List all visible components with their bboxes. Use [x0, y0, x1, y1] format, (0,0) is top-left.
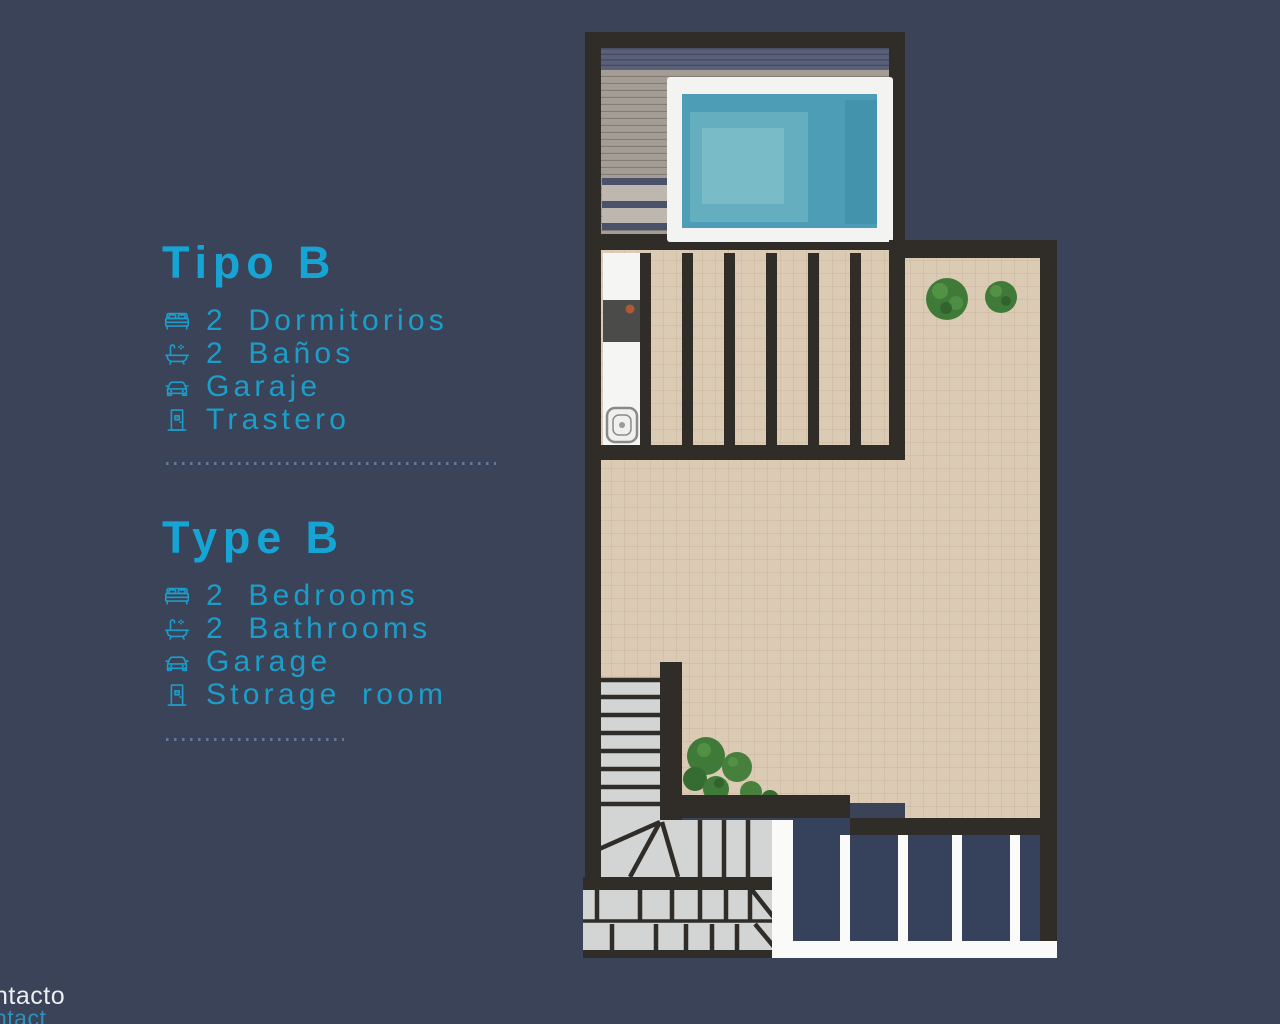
legend-spanish: Tipo B 2 Dormitorios 2 Baños Garaje Tras…: [160, 237, 448, 436]
swimming-pool: [667, 77, 893, 242]
legend-english: Type B 2 Bedrooms 2 Bathrooms Garage Sto…: [160, 512, 447, 711]
top-terrace: [585, 32, 905, 250]
door-icon: [160, 679, 194, 711]
feature-row-bedrooms: 2 Bedrooms: [160, 579, 447, 612]
feature-row-storage: Storage room: [160, 678, 447, 711]
dotted-separator: [166, 462, 496, 465]
deck-steps: [602, 178, 668, 230]
railing-base: [793, 941, 1057, 958]
feature-label: 2 Dormitorios: [206, 304, 448, 338]
car-icon: [160, 371, 194, 403]
feature-row-trastero: Trastero: [160, 403, 448, 436]
feature-label: 2 Bathrooms: [206, 612, 431, 646]
bed-icon: [160, 580, 194, 612]
feature-label: Garage: [206, 645, 331, 679]
dotted-separator: [166, 738, 344, 741]
pergola-terrace: [601, 250, 889, 445]
outdoor-kitchen: [603, 253, 640, 445]
feature-label: Trastero: [206, 403, 350, 437]
feature-row-bathrooms: 2 Bathrooms: [160, 612, 447, 645]
bathtub-icon: [160, 338, 194, 370]
car-icon: [160, 646, 194, 678]
section-title-type-b: Type B: [162, 512, 447, 564]
feature-label: 2 Bedrooms: [206, 579, 419, 613]
section-title-tipo-b: Tipo B: [162, 237, 448, 289]
feature-row-dormitorios: 2 Dormitorios: [160, 304, 448, 337]
door-icon: [160, 404, 194, 436]
feature-row-banos: 2 Baños: [160, 337, 448, 370]
footer-link-contact[interactable]: ntact: [0, 1005, 46, 1024]
feature-row-garage: Garage: [160, 645, 447, 678]
floor-plan: [583, 32, 1060, 958]
feature-label: Garaje: [206, 370, 321, 404]
bathtub-icon: [160, 613, 194, 645]
bed-icon: [160, 305, 194, 337]
feature-label: 2 Baños: [206, 337, 354, 371]
page-background: { "theme":{ "background":"#3a4357","acce…: [0, 0, 1280, 1024]
feature-label: Storage room: [206, 678, 447, 712]
feature-row-garaje: Garaje: [160, 370, 448, 403]
